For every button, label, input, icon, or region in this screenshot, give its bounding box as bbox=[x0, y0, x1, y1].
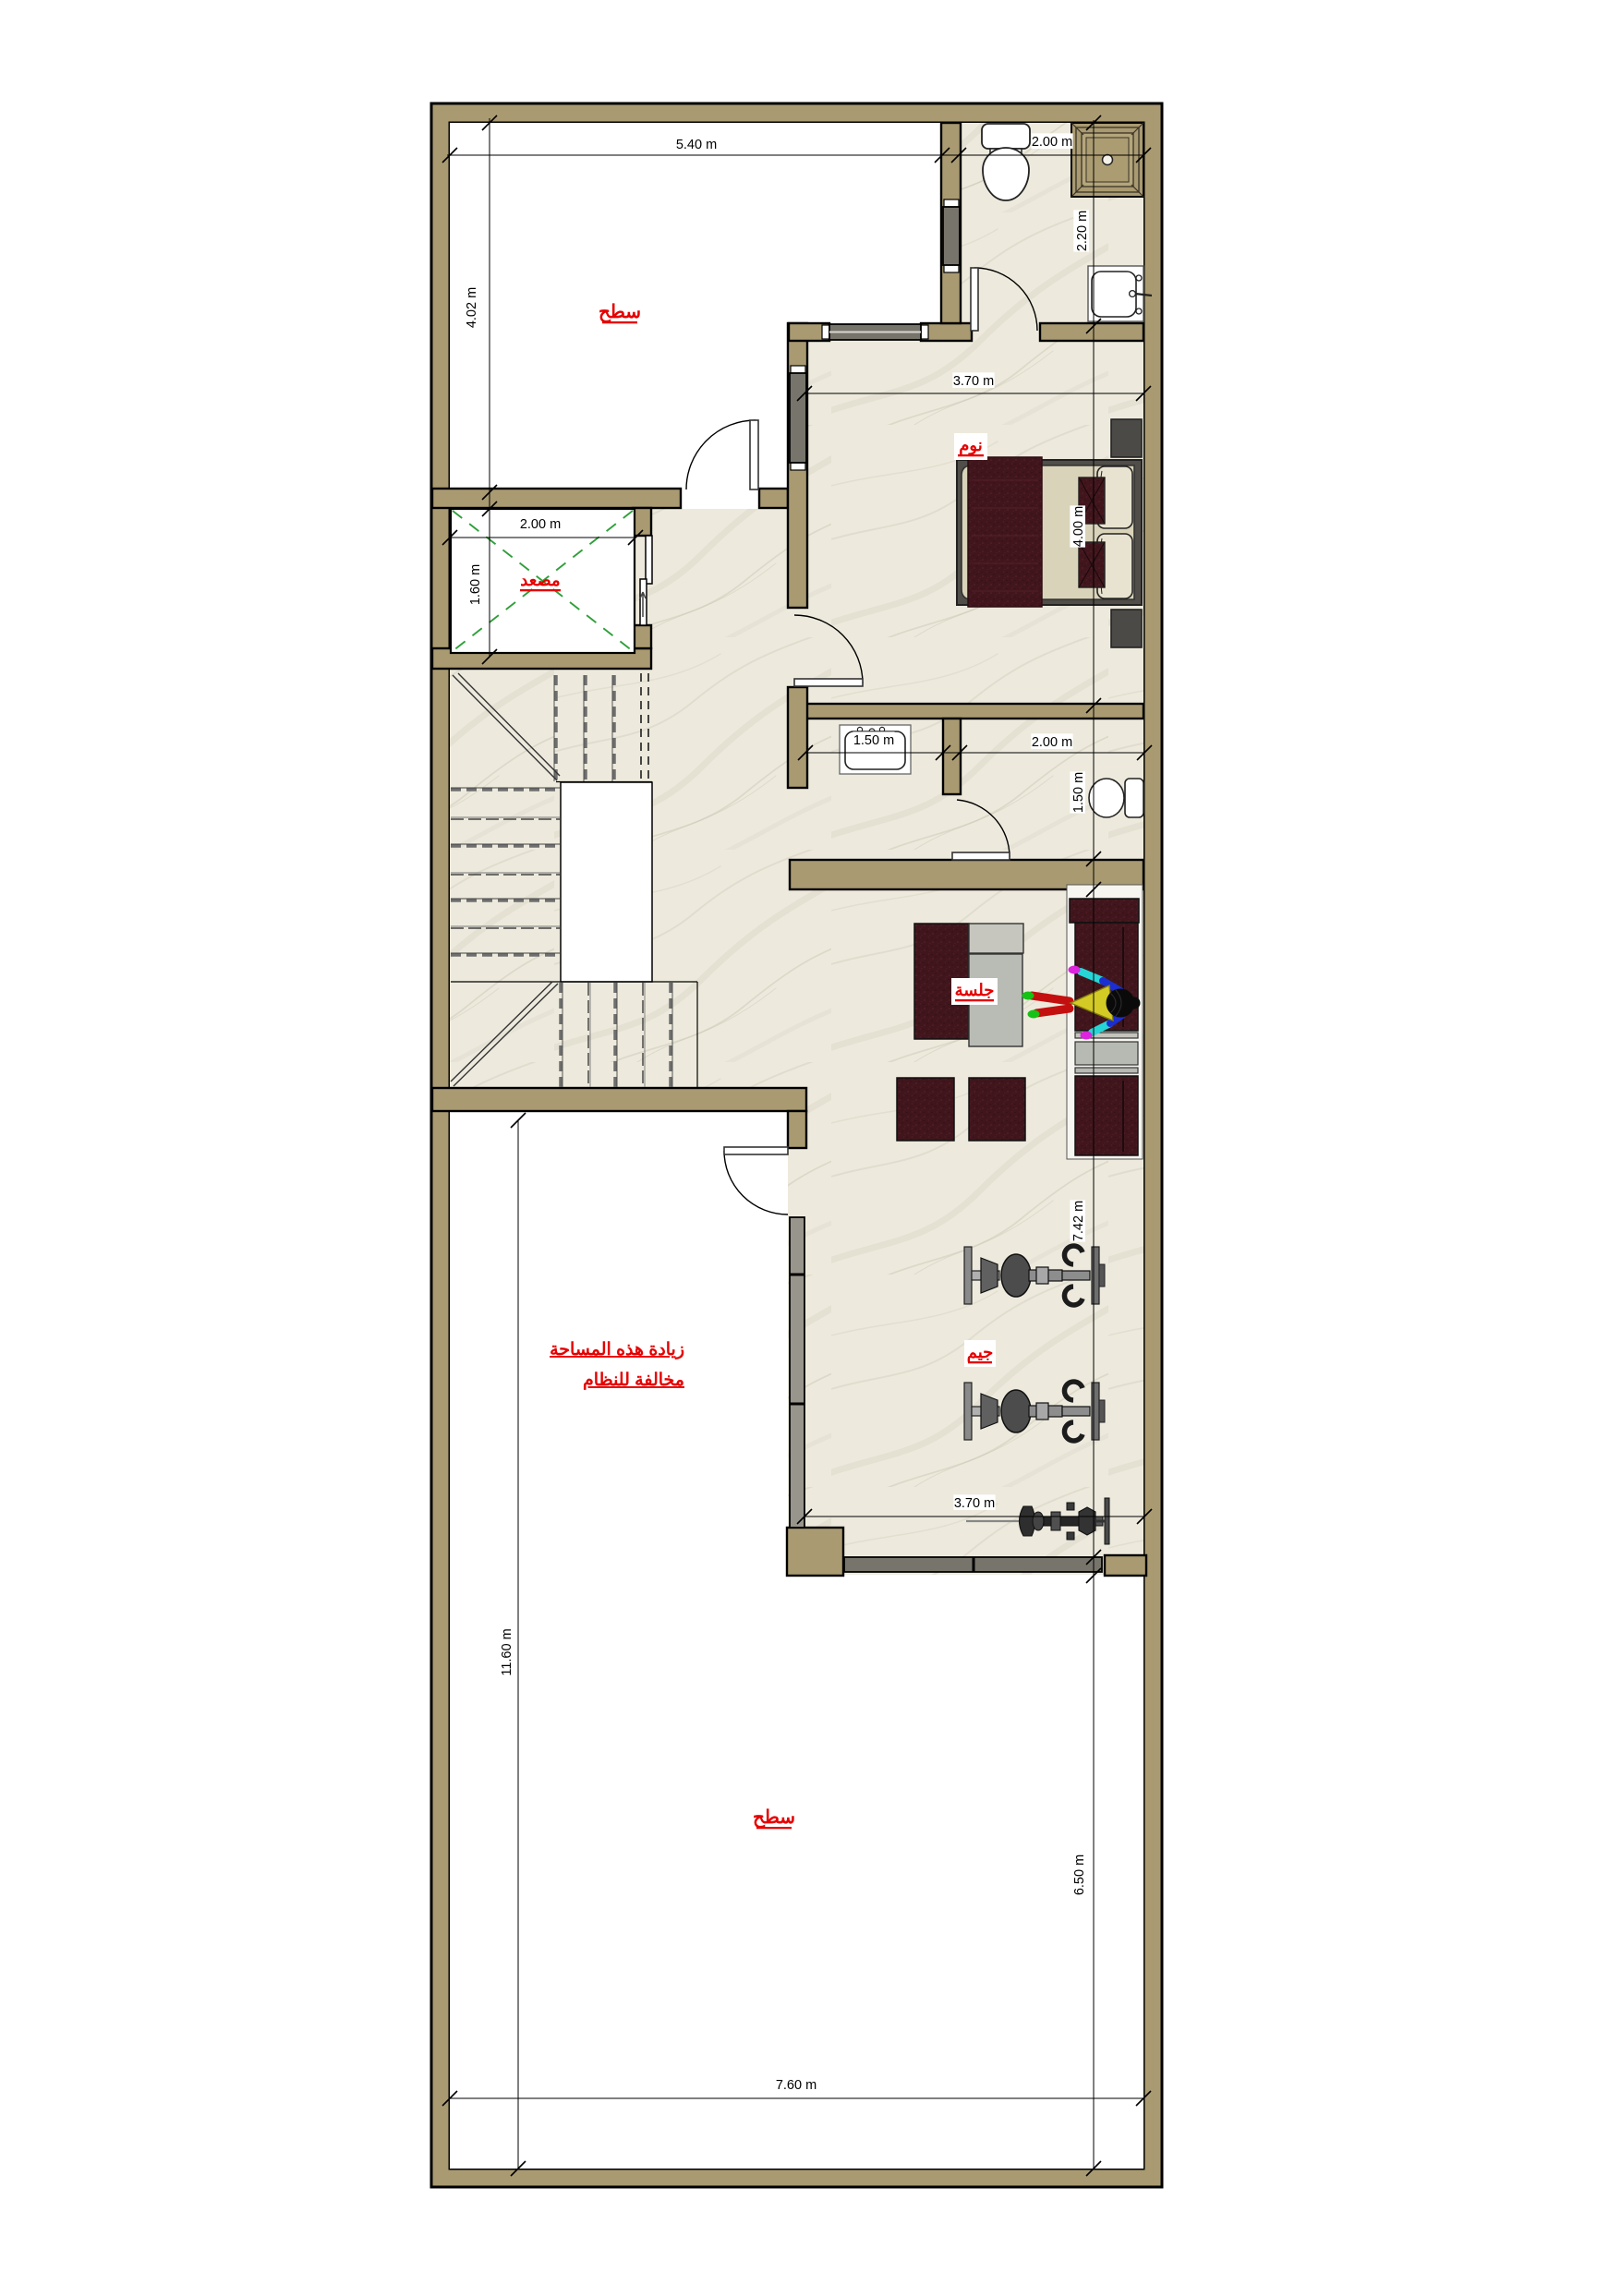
svg-text:5.40 m: 5.40 m bbox=[676, 138, 717, 152]
svg-text:سطح: سطح bbox=[599, 302, 641, 323]
svg-text:1.60 m: 1.60 m bbox=[468, 564, 483, 605]
svg-text:1.50 m: 1.50 m bbox=[1071, 772, 1086, 813]
svg-text:2.00 m: 2.00 m bbox=[1032, 135, 1072, 150]
svg-text:7.60 m: 7.60 m bbox=[776, 2078, 817, 2093]
svg-text:مصعد: مصعد bbox=[520, 571, 560, 589]
svg-text:11.60 m: 11.60 m bbox=[500, 1628, 514, 1675]
svg-text:7.42 m: 7.42 m bbox=[1071, 1201, 1086, 1241]
svg-text:جلسة: جلسة bbox=[955, 981, 995, 999]
svg-text:2.20 m: 2.20 m bbox=[1075, 211, 1090, 251]
svg-text:جيم: جيم bbox=[967, 1343, 994, 1362]
svg-text:3.70 m: 3.70 m bbox=[953, 374, 994, 389]
svg-text:زيادة هذه المساحة: زيادة هذه المساحة bbox=[550, 1340, 684, 1359]
svg-text:3.70 m: 3.70 m bbox=[954, 1496, 995, 1511]
svg-text:4.02 m: 4.02 m bbox=[465, 287, 479, 328]
svg-text:مخالفة للنظام: مخالفة للنظام bbox=[583, 1371, 684, 1390]
svg-text:4.00 m: 4.00 m bbox=[1071, 506, 1086, 547]
svg-text:2.00 m: 2.00 m bbox=[1032, 735, 1072, 750]
svg-text:2.00 m: 2.00 m bbox=[520, 517, 561, 532]
svg-text:نوم: نوم bbox=[959, 436, 982, 455]
svg-text:6.50 m: 6.50 m bbox=[1072, 1855, 1087, 1895]
svg-text:سطح: سطح bbox=[753, 1807, 795, 1829]
svg-text:1.50 m: 1.50 m bbox=[853, 733, 894, 748]
